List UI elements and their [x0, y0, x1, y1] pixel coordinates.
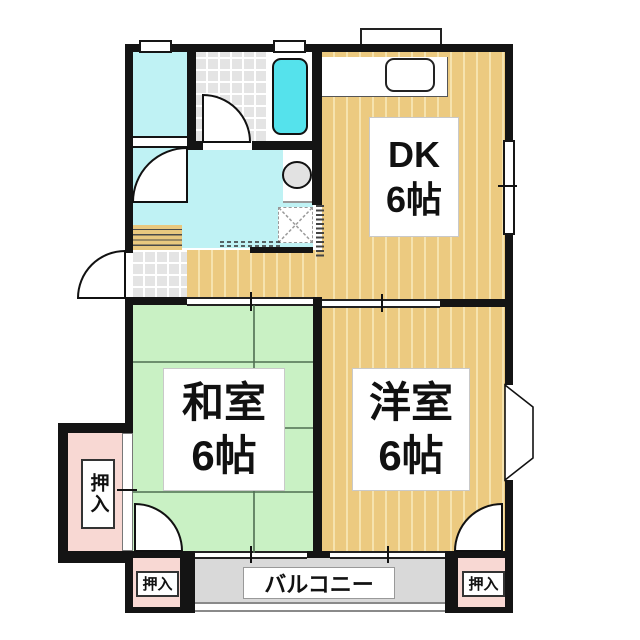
closet-bottom-right-label: 押入	[462, 571, 505, 597]
balcony-label: バルコニー	[243, 567, 395, 599]
tatami-room-size: 6帖	[191, 430, 256, 483]
closet-left-label-text: 押入	[89, 473, 108, 515]
closet-bottom-left-label: 押入	[136, 571, 179, 597]
entrance-door-arc	[78, 251, 125, 298]
closet-bottom-left-label-text: 押入	[142, 577, 172, 592]
tatami-room-name: 和室	[182, 377, 266, 430]
plan-marks-overlay	[0, 0, 640, 640]
western-closet-door-arc	[455, 504, 502, 551]
balcony-label-text: バルコニー	[264, 567, 374, 599]
washroom-door-arc	[133, 148, 187, 202]
tatami-closet-door-arc	[135, 504, 182, 551]
closet-left-label: 押入	[81, 459, 115, 529]
dk-room-size: 6帖	[386, 177, 442, 222]
washer-x-mark	[279, 208, 312, 242]
dk-room-label: DK 6帖	[369, 117, 459, 237]
western-room-name: 洋室	[369, 377, 453, 430]
closet-bottom-right-label-text: 押入	[468, 577, 498, 592]
floor-plan: DK 6帖 和室 6帖 洋室 6帖 バルコニー 押入 押入 押入	[0, 0, 640, 640]
western-room-size: 6帖	[378, 430, 443, 483]
tatami-room-label: 和室 6帖	[163, 368, 285, 491]
bay-window	[505, 385, 533, 480]
western-room-label: 洋室 6帖	[352, 368, 470, 491]
counter-dashed-edge	[220, 242, 282, 246]
sink-basin	[283, 162, 311, 188]
bathroom-door-arc	[203, 95, 250, 142]
dk-room-name: DK	[388, 132, 440, 177]
